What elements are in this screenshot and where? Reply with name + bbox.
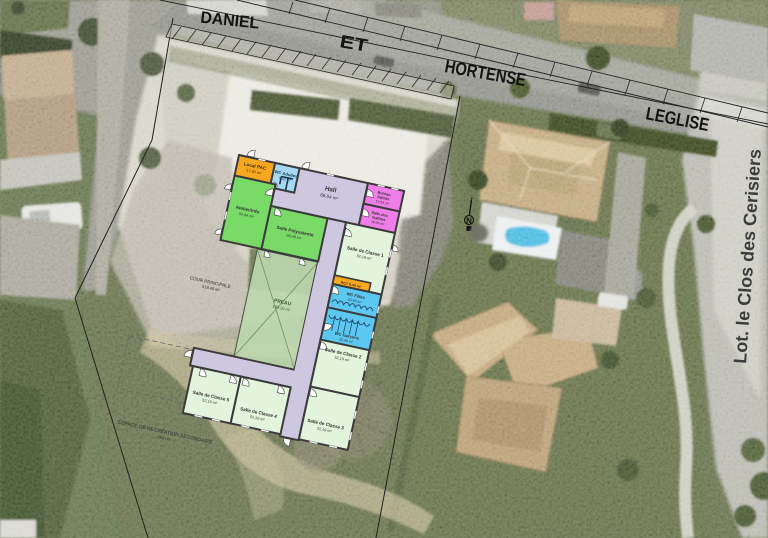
- svg-text:N: N: [466, 217, 472, 226]
